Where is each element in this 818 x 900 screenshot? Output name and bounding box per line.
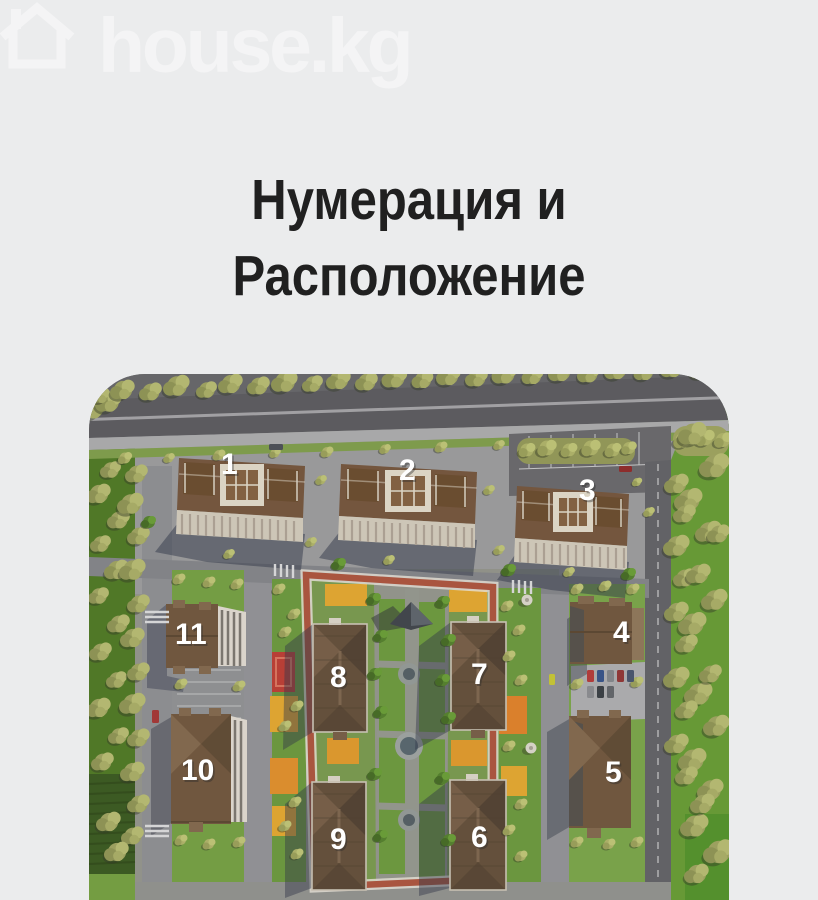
svg-text:11: 11 [175, 618, 207, 651]
svg-text:7: 7 [471, 658, 488, 691]
svg-text:3: 3 [579, 474, 596, 507]
svg-text:6: 6 [471, 821, 488, 854]
svg-text:2: 2 [399, 454, 416, 487]
svg-text:house.kg: house.kg [98, 3, 410, 89]
svg-text:10: 10 [181, 754, 214, 787]
svg-text:9: 9 [330, 823, 347, 856]
svg-text:4: 4 [613, 616, 630, 649]
svg-text:8: 8 [330, 661, 347, 694]
svg-text:1: 1 [221, 448, 238, 481]
svg-text:5: 5 [605, 756, 622, 789]
